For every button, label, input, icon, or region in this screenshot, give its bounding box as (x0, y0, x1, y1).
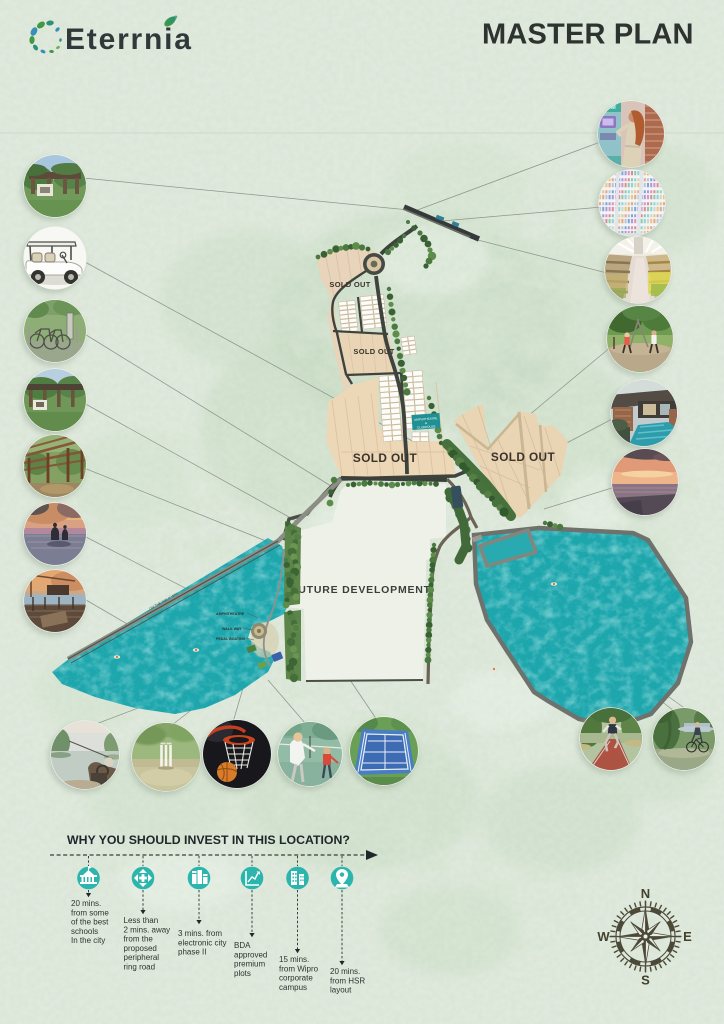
svg-text:AMPHITHEATRE: AMPHITHEATRE (216, 612, 245, 616)
svg-text:In the city: In the city (71, 936, 105, 945)
svg-text:schools: schools (71, 927, 98, 936)
svg-text:from Wipro: from Wipro (279, 964, 319, 973)
svg-text:layout: layout (330, 986, 352, 995)
svg-text:peripheral: peripheral (124, 953, 160, 962)
svg-text:electronic city: electronic city (178, 938, 226, 947)
svg-text:W: W (597, 929, 610, 944)
svg-text:20 mins.: 20 mins. (330, 967, 360, 976)
svg-text:proposed: proposed (124, 944, 157, 953)
svg-text:approved: approved (234, 950, 267, 959)
svg-text:plots: plots (234, 969, 251, 978)
svg-text:WHY YOU SHOULD INVEST IN THIS: WHY YOU SHOULD INVEST IN THIS LOCATION? (67, 833, 350, 847)
svg-text:3 mins. from: 3 mins. from (178, 929, 222, 938)
svg-text:premium: premium (234, 960, 265, 969)
svg-text:MASTER PLAN: MASTER PLAN (482, 19, 694, 51)
svg-text:from HSR: from HSR (330, 976, 365, 985)
svg-text:FUTURE DEVELOPMENT: FUTURE DEVELOPMENT (291, 584, 431, 596)
svg-text:campus: campus (279, 983, 307, 992)
svg-text:corporate: corporate (279, 974, 313, 983)
svg-text:ring road: ring road (124, 963, 156, 972)
svg-text:Eterrnia: Eterrnia (65, 23, 193, 56)
svg-text:PEDAL BOATING: PEDAL BOATING (216, 637, 246, 641)
svg-text:BDA: BDA (234, 941, 251, 950)
svg-text:of the best: of the best (71, 918, 109, 927)
svg-text:N: N (641, 886, 650, 901)
svg-text:phase II: phase II (178, 948, 206, 957)
svg-text:SOLD OUT: SOLD OUT (353, 347, 394, 356)
svg-text:SOLD OUT: SOLD OUT (329, 280, 370, 289)
svg-text:from the: from the (124, 935, 154, 944)
svg-text:S: S (641, 973, 650, 988)
svg-text:SOLD OUT: SOLD OUT (491, 450, 556, 464)
svg-text:2 mins. away: 2 mins. away (124, 925, 171, 934)
svg-text:Less than: Less than (124, 916, 159, 925)
svg-text:15 mins.: 15 mins. (279, 955, 309, 964)
svg-text:WALK WAY: WALK WAY (222, 627, 242, 631)
svg-text:from some: from some (71, 908, 109, 917)
svg-text:SOLD OUT: SOLD OUT (353, 451, 418, 465)
svg-text:E: E (683, 929, 692, 944)
svg-text:20 mins.: 20 mins. (71, 899, 101, 908)
